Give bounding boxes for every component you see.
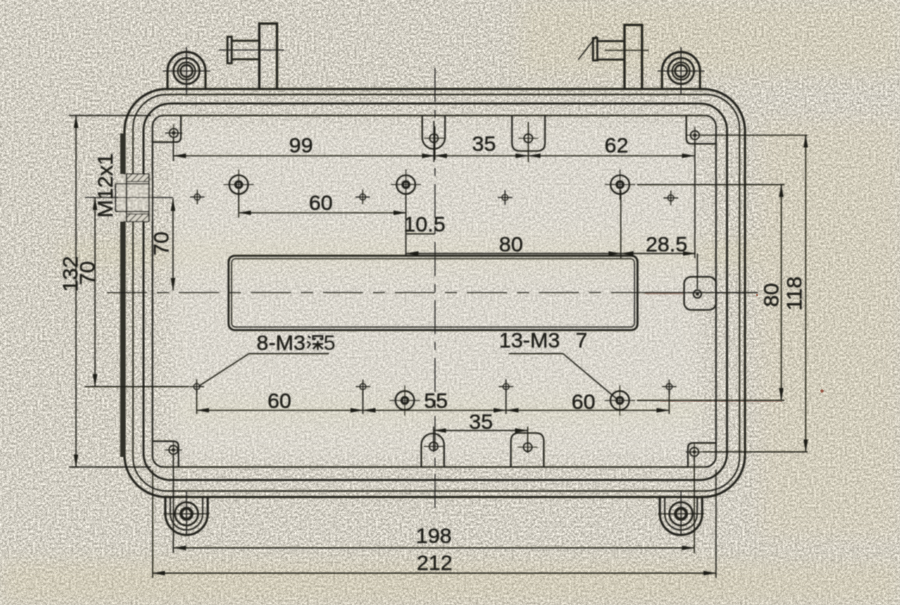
svg-text:60: 60 [571, 390, 595, 414]
svg-text:55: 55 [424, 389, 448, 413]
svg-text:8-M3: 8-M3 [257, 331, 306, 355]
svg-text:212: 212 [417, 551, 453, 575]
svg-text:99: 99 [289, 134, 313, 158]
svg-text:80: 80 [760, 283, 784, 307]
svg-text:80: 80 [499, 233, 523, 257]
svg-text:10.5: 10.5 [404, 213, 446, 237]
svg-text:35: 35 [469, 410, 493, 434]
svg-text:13-M3: 13-M3 [499, 329, 560, 353]
svg-text:M12x1: M12x1 [94, 153, 118, 218]
svg-text:70: 70 [76, 261, 100, 285]
svg-text:7: 7 [576, 329, 588, 353]
svg-text:5: 5 [324, 331, 336, 355]
svg-text:28.5: 28.5 [646, 233, 688, 257]
svg-text:60: 60 [309, 191, 333, 215]
svg-text:62: 62 [605, 134, 629, 158]
svg-text:118: 118 [783, 276, 807, 310]
svg-text:60: 60 [267, 389, 291, 413]
svg-text:70: 70 [150, 232, 174, 256]
svg-text:35: 35 [472, 132, 496, 156]
svg-text:198: 198 [416, 524, 452, 548]
